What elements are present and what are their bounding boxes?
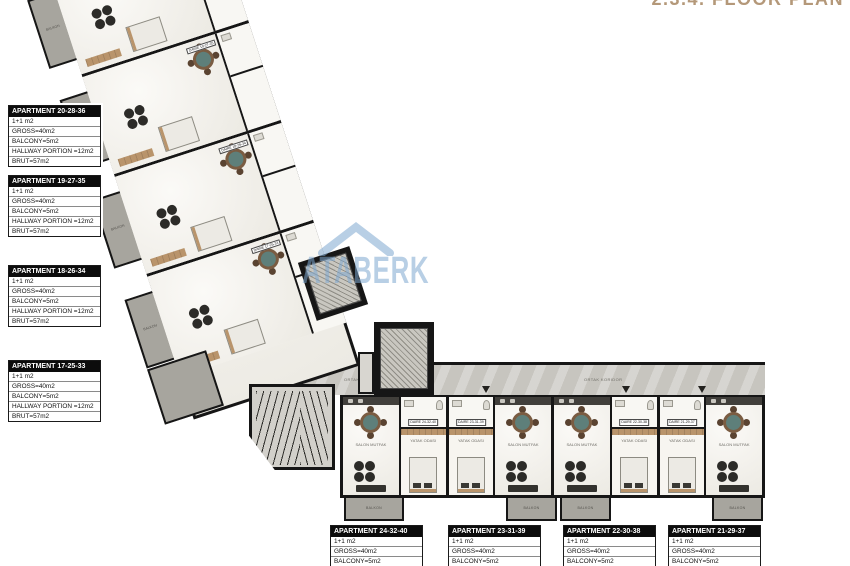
- balcony-label: BALKON: [714, 506, 761, 510]
- sofa-set-icon: [155, 207, 168, 220]
- page-title: 2.3.4. FLOOR PLAN: [651, 0, 844, 10]
- bed-icon: [158, 116, 200, 152]
- sofa-set-icon: [717, 461, 727, 471]
- dining-table-icon: [723, 412, 744, 433]
- kitchen-counter: [554, 397, 610, 405]
- bed-icon: [668, 457, 696, 493]
- apartment-name: APARTMENT 17-25-33: [9, 361, 100, 372]
- dining-table-icon: [571, 412, 592, 433]
- apartment-name: APARTMENT 23-31-39: [449, 526, 540, 537]
- living-label: SALON MUTFAK: [343, 442, 399, 447]
- sofa-set-icon: [354, 461, 364, 471]
- parquet-strip: [85, 48, 122, 67]
- door-icon: [622, 386, 630, 393]
- bottom-wing: SALON MUTFAK DAIRE 24-32-40 YATAK ODASI: [340, 395, 765, 498]
- kitchen-counter: [495, 397, 551, 405]
- bed-icon: [409, 457, 437, 493]
- sofa-icon: [508, 485, 538, 492]
- sink-icon: [285, 232, 297, 242]
- spec-line: 1+1 m2: [669, 537, 760, 547]
- spec-line: BALCONY=5m2: [9, 392, 100, 402]
- balcony-label: BALKON: [104, 221, 132, 233]
- sofa-icon: [567, 485, 597, 492]
- spec-line: BRUT=57m2: [9, 317, 100, 326]
- dining-table-icon: [512, 412, 533, 433]
- apartment-unit-24-32-40: SALON MUTFAK DAIRE 24-32-40 YATAK ODASI: [343, 397, 449, 495]
- sofa-set-icon: [506, 461, 516, 471]
- sink-icon: [404, 400, 414, 407]
- bathroom: DAIRE 21-29-37: [660, 397, 705, 429]
- toilet-icon: [436, 400, 443, 410]
- bed-icon: [457, 457, 485, 493]
- kitchen-counter: [706, 397, 762, 405]
- bed-icon: [125, 16, 167, 52]
- sofa-set-icon: [188, 307, 201, 320]
- spec-line: 1+1 m2: [331, 537, 422, 547]
- elevator-hatch: [380, 328, 428, 389]
- bed-bath-column: DAIRE 22-30-38 YATAK ODASI: [612, 397, 657, 495]
- spec-line: BALCONY=5m2: [564, 557, 655, 566]
- toilet-icon: [483, 400, 490, 410]
- bedroom-label: YATAK ODASI: [401, 438, 446, 443]
- sofa-icon: [719, 485, 749, 492]
- apartment-unit-21-29-37: SALON MUTFAK DAIRE 21-29-37 YATAK ODASI: [660, 397, 763, 495]
- apartment-unit-22-30-38: SALON MUTFAK DAIRE 22-30-38 YATAK ODASI: [554, 397, 660, 495]
- spec-line: BALCONY=5m2: [9, 297, 100, 307]
- stair-flight: [256, 391, 300, 465]
- parquet-strip: [150, 248, 187, 267]
- balcony-label: BALKON: [136, 321, 164, 333]
- apartment-spec-box-24-32-40: APARTMENT 24-32-40 1+1 m2 GROSS=40m2 BAL…: [330, 525, 423, 566]
- elevator-shaft: [374, 322, 434, 395]
- kitchen-counter: [343, 397, 399, 405]
- door-icon: [482, 386, 490, 393]
- apartment-spec-box-22-30-38: APARTMENT 22-30-38 1+1 m2 GROSS=40m2 BAL…: [563, 525, 656, 566]
- unit-number-tag: DAIRE 24-32-40: [408, 419, 438, 426]
- sink-icon: [452, 400, 462, 407]
- spec-line: BRUT=57m2: [9, 412, 100, 421]
- apartment-spec-box-21-29-37: APARTMENT 21-29-37 1+1 m2 GROSS=40m2 BAL…: [668, 525, 761, 566]
- staircase: [249, 384, 335, 470]
- wardrobe-strip: [612, 429, 657, 435]
- sofa-set-icon: [565, 461, 575, 471]
- sofa-set-icon: [90, 7, 103, 20]
- stove-icon: [348, 399, 353, 403]
- bedroom-label: YATAK ODASI: [660, 438, 705, 443]
- floor-plan-page: 2.3.4. FLOOR PLAN BALKON DAIRE 20-28-36 …: [0, 0, 850, 566]
- apartment-name: APARTMENT 18-26-34: [9, 266, 100, 277]
- balcony: BALKON: [506, 496, 557, 521]
- apartment-spec-box-19-27-35: APARTMENT 19-27-35 1+1 m2 GROSS=40m2 BAL…: [8, 175, 101, 237]
- sofa-icon: [356, 485, 386, 492]
- spec-line: GROSS=40m2: [9, 127, 100, 137]
- balcony-label: BALKON: [346, 506, 402, 510]
- toilet-icon: [647, 400, 654, 410]
- spec-line: BALCONY=5m2: [669, 557, 760, 566]
- spec-line: BRUT=57m2: [9, 227, 100, 236]
- wardrobe-strip: [401, 429, 446, 435]
- apartment-name: APARTMENT 20-28-36: [9, 106, 100, 117]
- living-kitchen: SALON MUTFAK: [343, 397, 401, 495]
- apartment-name: APARTMENT 21-29-37: [669, 526, 760, 537]
- spec-line: 1+1 m2: [9, 277, 100, 287]
- apartment-name: APARTMENT 24-32-40: [331, 526, 422, 537]
- bathroom: DAIRE 22-30-38: [612, 397, 657, 429]
- bed-icon: [190, 216, 232, 252]
- unit-number-tag: DAIRE 22-30-38: [619, 419, 649, 426]
- spec-line: BALCONY=5m2: [449, 557, 540, 566]
- sink-icon: [615, 400, 625, 407]
- spec-line: HALLWAY PORTION =12m2: [9, 217, 100, 227]
- stove-icon: [500, 399, 505, 403]
- apartment-unit-23-31-39: SALON MUTFAK DAIRE 23-31-39 YATAK ODASI: [449, 397, 555, 495]
- sink-icon: [220, 32, 232, 42]
- spec-line: BRUT=57m2: [9, 157, 100, 166]
- bedroom: YATAK ODASI: [612, 429, 657, 495]
- spec-line: GROSS=40m2: [564, 547, 655, 557]
- spec-line: GROSS=40m2: [9, 197, 100, 207]
- dining-table-icon: [360, 412, 381, 433]
- toilet-icon: [694, 400, 701, 410]
- balcony-label: BALKON: [562, 506, 609, 510]
- bed-bath-column: DAIRE 24-32-40 YATAK ODASI: [401, 397, 446, 495]
- bedroom: YATAK ODASI: [660, 429, 705, 495]
- shaft-duct: [358, 352, 374, 394]
- apartment-name: APARTMENT 22-30-38: [564, 526, 655, 537]
- sink-icon: [253, 132, 265, 142]
- living-label: SALON MUTFAK: [554, 442, 610, 447]
- unit-number-tag: DAIRE 23-31-39: [456, 419, 486, 426]
- bedroom-label: YATAK ODASI: [612, 438, 657, 443]
- stove-icon: [559, 399, 564, 403]
- apartment-spec-box-18-26-34: APARTMENT 18-26-34 1+1 m2 GROSS=40m2 BAL…: [8, 265, 101, 327]
- apartment-name: APARTMENT 19-27-35: [9, 176, 100, 187]
- bedroom: YATAK ODASI: [401, 429, 446, 495]
- spec-line: BALCONY=5m2: [331, 557, 422, 566]
- balcony: BALKON: [560, 496, 611, 521]
- corridor-label: ORTAK KORIDOR: [584, 377, 622, 382]
- spec-line: HALLWAY PORTION =12m2: [9, 402, 100, 412]
- living-kitchen: SALON MUTFAK: [493, 397, 551, 495]
- stair-flight: [300, 391, 328, 465]
- bed-bath-column: DAIRE 23-31-39 YATAK ODASI: [449, 397, 494, 495]
- balcony-label: BALKON: [508, 506, 555, 510]
- spec-line: HALLWAY PORTION =12m2: [9, 307, 100, 317]
- balcony: BALKON: [344, 496, 404, 521]
- living-kitchen: SALON MUTFAK: [554, 397, 612, 495]
- spec-line: BALCONY=5m2: [9, 137, 100, 147]
- apartment-spec-box-23-31-39: APARTMENT 23-31-39 1+1 m2 GROSS=40m2 BAL…: [448, 525, 541, 566]
- spec-line: GROSS=40m2: [9, 382, 100, 392]
- watermark-house-icon: [318, 220, 394, 256]
- spec-line: GROSS=40m2: [449, 547, 540, 557]
- spec-line: BALCONY=5m2: [9, 207, 100, 217]
- apartment-spec-box-17-25-33: APARTMENT 17-25-33 1+1 m2 GROSS=40m2 BAL…: [8, 360, 101, 422]
- bed-icon: [620, 457, 648, 493]
- balcony: BALKON: [712, 496, 763, 521]
- spec-line: GROSS=40m2: [9, 287, 100, 297]
- stove-icon: [711, 399, 716, 403]
- spec-line: 1+1 m2: [449, 537, 540, 547]
- wardrobe-strip: [449, 429, 494, 435]
- bedroom-label: YATAK ODASI: [449, 438, 494, 443]
- diagonal-wing: BALKON DAIRE 20-28-36 BALKON DAIRE 19-27…: [64, 0, 360, 419]
- bathroom: DAIRE 23-31-39: [449, 397, 494, 429]
- spec-line: 1+1 m2: [9, 187, 100, 197]
- bed-icon: [224, 319, 266, 355]
- spec-line: 1+1 m2: [9, 117, 100, 127]
- apartment-spec-box-20-28-36: APARTMENT 20-28-36 1+1 m2 GROSS=40m2 BAL…: [8, 105, 101, 167]
- parquet-strip: [118, 148, 155, 167]
- bathroom: DAIRE 24-32-40: [401, 397, 446, 429]
- bedroom: YATAK ODASI: [449, 429, 494, 495]
- elevator-hatch: [304, 252, 362, 314]
- sofa-set-icon: [123, 107, 136, 120]
- spec-line: GROSS=40m2: [669, 547, 760, 557]
- living-kitchen: SALON MUTFAK: [704, 397, 762, 495]
- balcony-label: BALKON: [39, 22, 67, 34]
- spec-line: 1+1 m2: [564, 537, 655, 547]
- unit-number-tag: DAIRE 21-29-37: [667, 419, 697, 426]
- spec-line: 1+1 m2: [9, 372, 100, 382]
- spec-line: HALLWAY PORTION =12m2: [9, 147, 100, 157]
- door-icon: [698, 386, 706, 393]
- living-label: SALON MUTFAK: [706, 442, 762, 447]
- spec-line: GROSS=40m2: [331, 547, 422, 557]
- wardrobe-strip: [660, 429, 705, 435]
- living-label: SALON MUTFAK: [495, 442, 551, 447]
- sink-icon: [663, 400, 673, 407]
- bed-bath-column: DAIRE 21-29-37 YATAK ODASI: [660, 397, 705, 495]
